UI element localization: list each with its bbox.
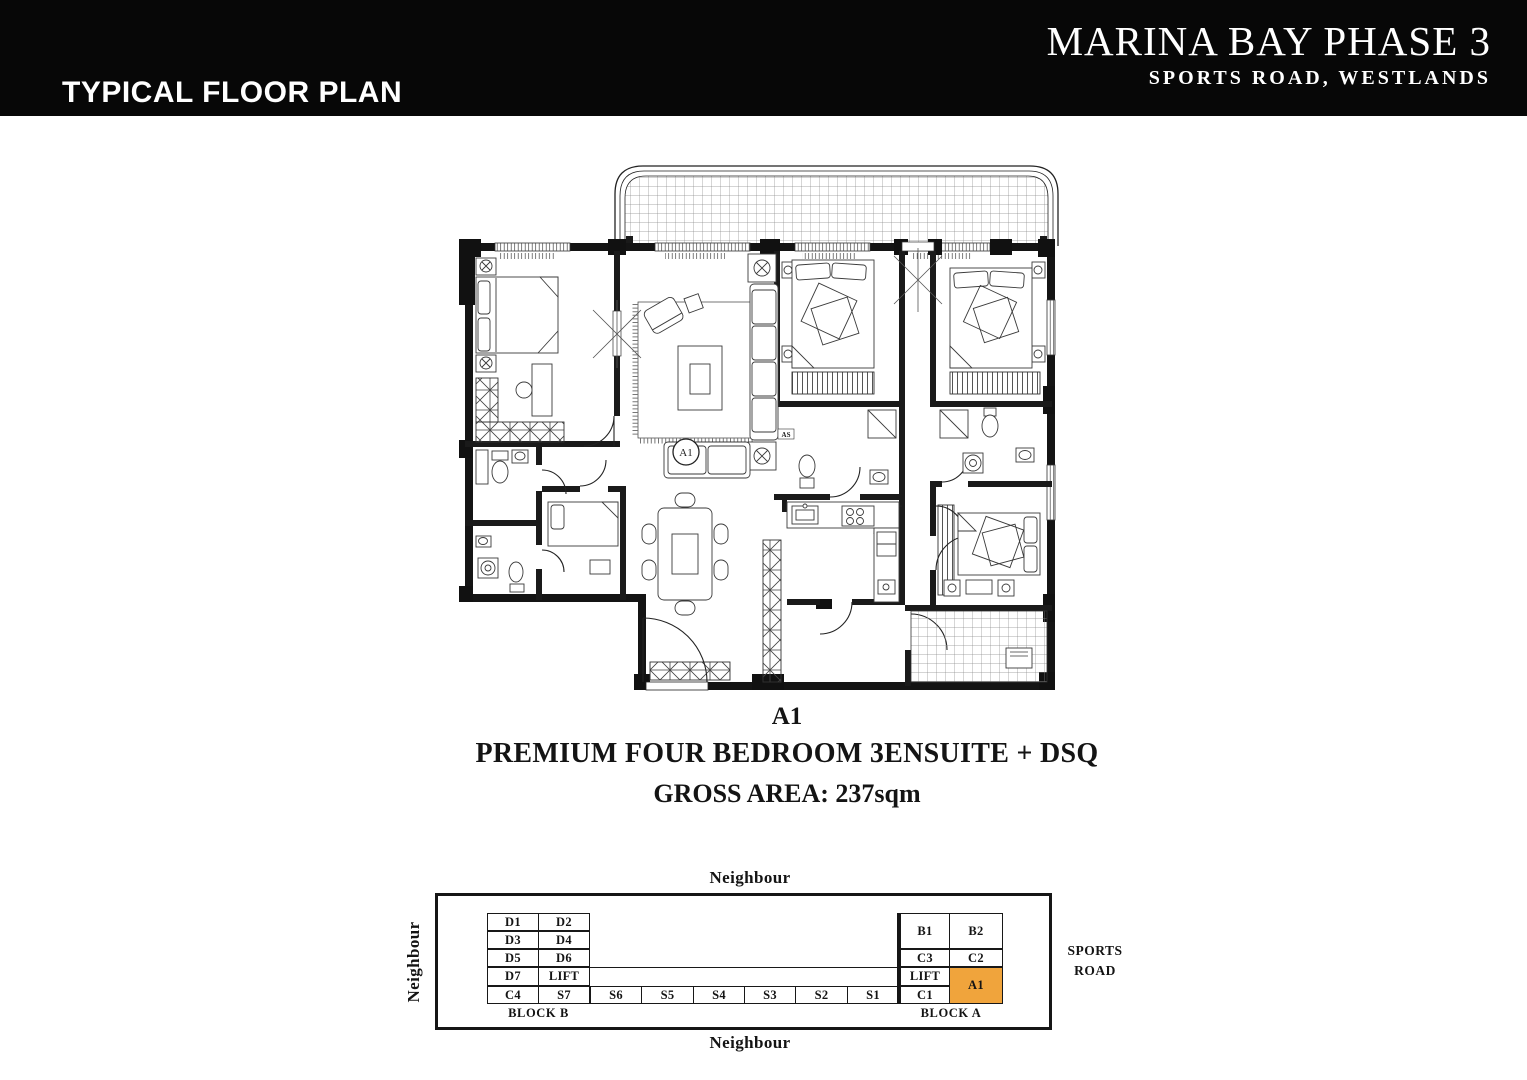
corridor-strip: [590, 967, 900, 986]
block-b-label: BLOCK B: [487, 1006, 590, 1021]
unit-cell-s1: S1: [847, 986, 899, 1004]
sports-road-line1: SPORTS: [1058, 941, 1132, 961]
bedroom2-furniture: [782, 260, 874, 368]
balcony-rear: [911, 611, 1047, 682]
unit-cell-d5: D5: [487, 949, 539, 967]
unit-cell-d6: D6: [538, 949, 590, 967]
unit-cell-b2: B2: [949, 913, 1003, 949]
bedroom3-furniture: [950, 262, 1045, 368]
unit-cell-a1: A1: [949, 967, 1003, 1004]
unit-gross-area: GROSS AREA: 237sqm: [438, 779, 1136, 809]
block-a-label: BLOCK A: [899, 1006, 1003, 1021]
unit-cell-lift-a: LIFT: [900, 967, 950, 986]
unit-cell-d3: D3: [487, 931, 539, 949]
kitchen-fixtures: [787, 502, 899, 602]
neighbour-label-bottom: Neighbour: [650, 1033, 850, 1053]
project-title: MARINA BAY PHASE 3: [1047, 20, 1491, 63]
unit-cell-s5: S5: [641, 986, 694, 1004]
sports-road-label: SPORTS ROAD: [1058, 941, 1132, 982]
unit-caption: A1 PREMIUM FOUR BEDROOM 3ENSUITE + DSQ G…: [438, 703, 1136, 809]
dining-set: [642, 493, 728, 615]
unit-cell-d4: D4: [538, 931, 590, 949]
unit-marker: A1: [673, 439, 699, 465]
unit-cell-c3: C3: [900, 949, 950, 967]
neighbour-label-left: Neighbour: [404, 917, 424, 1007]
unit-cell-s3: S3: [744, 986, 796, 1004]
brochure-page: TYPICAL FLOOR PLAN MARINA BAY PHASE 3 SP…: [0, 0, 1527, 1080]
unit-cell-d7: D7: [487, 967, 539, 986]
unit-cell-lift-b: LIFT: [538, 967, 590, 986]
floor-plan-drawing: AS: [450, 150, 1070, 715]
unit-cell-s2: S2: [795, 986, 848, 1004]
unit-cell-b1: B1: [900, 913, 950, 949]
unit-cell-c4: C4: [487, 986, 539, 1004]
neighbour-label-top: Neighbour: [650, 868, 850, 888]
living-room-furniture: [635, 254, 778, 478]
dsq-furniture: [548, 502, 618, 574]
bathroom-fixtures: [799, 408, 1034, 488]
balcony-top: [615, 166, 1058, 246]
unit-cell-d1: D1: [487, 913, 539, 931]
project-subtitle: SPORTS ROAD, WESTLANDS: [1047, 67, 1491, 90]
bath-label-box: AS: [778, 429, 794, 439]
unit-marker-label: A1: [679, 447, 692, 459]
unit-cell-s4: S4: [693, 986, 745, 1004]
section-title: TYPICAL FLOOR PLAN: [62, 76, 402, 110]
unit-cell-c1: C1: [900, 986, 950, 1004]
project-heading: MARINA BAY PHASE 3 SPORTS ROAD, WESTLAND…: [1047, 20, 1491, 90]
site-location-diagram: D1 D2 D3 D4 D5 D6 D7 LIFT C4 S7 S6 S5 S4…: [435, 893, 1052, 1030]
header-banner: TYPICAL FLOOR PLAN MARINA BAY PHASE 3 SP…: [0, 0, 1527, 116]
sports-road-line2: ROAD: [1058, 961, 1132, 981]
bath-label: AS: [782, 431, 791, 439]
unit-name: A1: [438, 703, 1136, 731]
bedroom4-furniture: [944, 513, 1040, 596]
unit-cell-d2: D2: [538, 913, 590, 931]
unit-cell-s7: S7: [538, 986, 590, 1004]
unit-cell-s6: S6: [590, 986, 642, 1004]
unit-cell-c2: C2: [949, 949, 1003, 967]
unit-description: PREMIUM FOUR BEDROOM 3ENSUITE + DSQ: [438, 738, 1136, 770]
